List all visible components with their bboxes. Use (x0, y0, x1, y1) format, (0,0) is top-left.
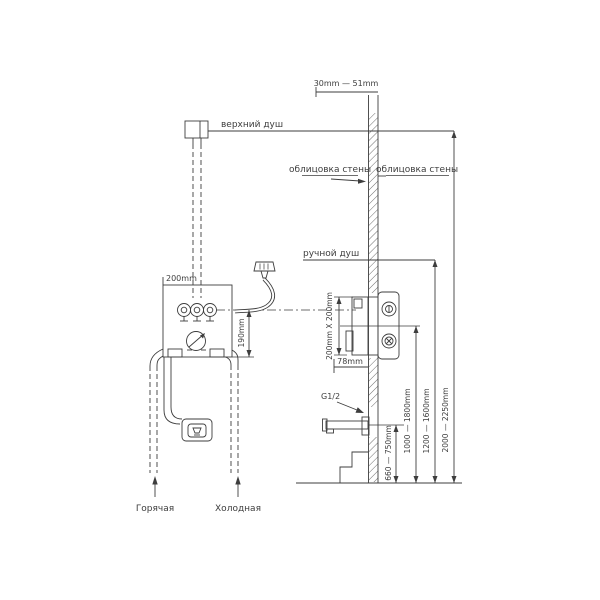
supply-pipes (150, 349, 238, 473)
valve-section (340, 292, 420, 359)
hot-supply-arrow (152, 476, 157, 497)
front-view: Горячая Холодная 200mm 190mm (136, 121, 356, 514)
overhead-shower-head-icon (185, 121, 208, 144)
tub-spout-front-icon (182, 419, 212, 441)
label-hand-shower: ручной душ (303, 249, 359, 259)
mixer-box (163, 277, 232, 357)
thread-callout: G1/2 (321, 392, 364, 413)
diverter-valve (187, 332, 207, 351)
dim-spout-height: 660 — 750mm (384, 425, 393, 481)
shower-installation-diagram: Горячая Холодная 200mm 190mm 30mm — 51mm (0, 0, 600, 600)
label-thread-size: G1/2 (321, 392, 340, 401)
dim-rough-in: 200mm X 200mm (325, 292, 334, 360)
dim-box-depth: 78mm (337, 357, 363, 366)
cladding-label-right: облицовка стены (376, 165, 458, 176)
spout-height-dimension: 660 — 750mm (384, 425, 399, 483)
hand-shower-icon (235, 262, 275, 312)
dim-top-shower-height: 2000 — 2250mm (441, 387, 450, 452)
label-hot-supply: Горячая (136, 504, 174, 514)
cladding-depth-dimension: 30mm — 51mm (314, 79, 379, 97)
mixer-height-dimension: 1000 — 1800mm (403, 326, 419, 483)
box-depth-dimension: 78mm (334, 357, 368, 373)
dim-hand-shower-height: 1200 — 1600mm (422, 388, 431, 453)
installation-drawing-sheet: Горячая Холодная 200mm 190mm 30mm — 51mm (0, 0, 600, 600)
label-cladding-right: облицовка стены (376, 165, 458, 175)
valve-knobs (178, 304, 217, 322)
tray-step-profile (340, 452, 368, 483)
dim-box-height: 190mm (237, 319, 246, 348)
label-top-shower: верхний душ (221, 120, 283, 130)
box-height-dimension: 190mm (232, 310, 254, 357)
top-shower-height-dimension: 2000 — 2250mm (441, 131, 457, 483)
cold-supply-arrow (235, 476, 240, 497)
label-cladding-left: облицовка стены (289, 165, 371, 175)
dim-box-width: 200mm (166, 274, 197, 283)
dim-mixer-height: 1000 — 1800mm (403, 388, 412, 453)
hand-shower-height-dimension: 1200 — 1600mm (422, 260, 438, 483)
label-cold-supply: Холодная (215, 504, 261, 514)
section-view: 30mm — 51mm верхний душ облицовка стены … (208, 79, 462, 483)
cladding-label-left: облицовка стены (289, 165, 371, 184)
dim-cladding-range: 30mm — 51mm (314, 79, 379, 88)
